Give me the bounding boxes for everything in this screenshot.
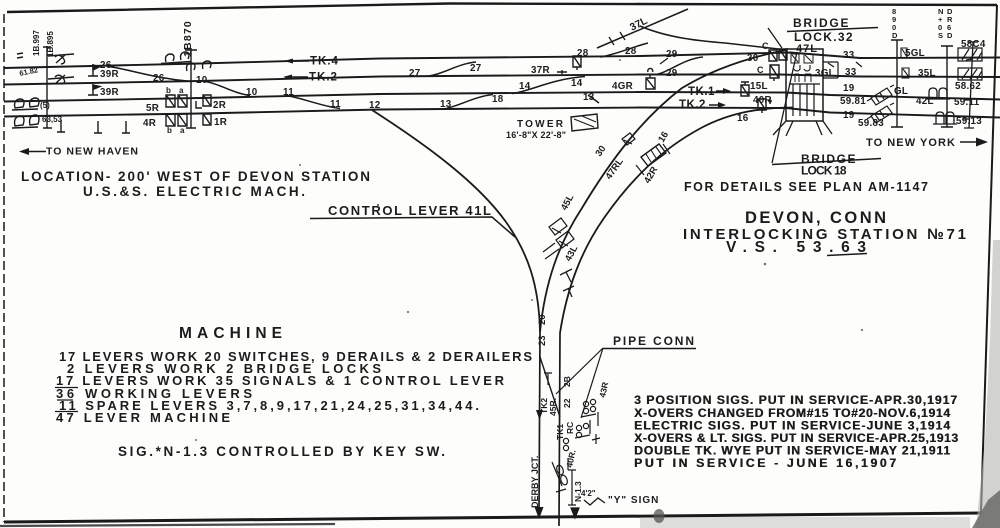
svg-text:39R: 39R (100, 69, 119, 80)
svg-text:a: a (180, 126, 185, 135)
svg-text:39R: 39R (100, 87, 119, 98)
svg-text:1B870: 1B870 (182, 20, 194, 57)
svg-text:4R: 4R (143, 118, 156, 129)
svg-text:45R.: 45R. (548, 398, 558, 416)
svg-text:D: D (892, 31, 898, 40)
svg-text:15L: 15L (750, 81, 768, 92)
svg-text:29: 29 (666, 68, 678, 79)
svg-text:10: 10 (196, 75, 208, 86)
svg-text:1R: 1R (214, 117, 227, 128)
svg-text:47RL: 47RL (603, 156, 625, 182)
svg-text:23: 23 (537, 335, 548, 346)
svg-text:37R: 37R (531, 65, 550, 76)
svg-text:59.11: 59.11 (954, 97, 980, 108)
svg-text:TK.4: TK.4 (310, 56, 339, 68)
svg-text:U.S.&S. ELECTRIC MACH.: U.S.&S. ELECTRIC MACH. (83, 184, 305, 199)
svg-text:28: 28 (577, 48, 589, 59)
svg-text:b: b (167, 126, 172, 135)
svg-text:RC: RC (565, 422, 575, 434)
svg-text:22: 22 (562, 398, 572, 408)
svg-text:TO NEW YORK: TO NEW YORK (866, 137, 955, 149)
svg-text:TO NEW HAVEN: TO NEW HAVEN (46, 146, 138, 158)
svg-text:TK.1: TK.1 (688, 86, 715, 98)
svg-text:35L: 35L (918, 68, 936, 79)
svg-text:BRIDGE: BRIDGE (793, 16, 851, 30)
svg-text:12: 12 (369, 100, 381, 111)
svg-text:5R: 5R (146, 103, 159, 114)
svg-text:TOWER: TOWER (517, 119, 564, 130)
svg-text:11: 11 (330, 99, 341, 110)
svg-text:13: 13 (583, 92, 595, 103)
svg-text:43L: 43L (563, 244, 580, 264)
svg-text:30: 30 (593, 144, 608, 159)
svg-text:CONTROL LEVER 41L: CONTROL LEVER 41L (328, 203, 491, 218)
svg-text:13: 13 (440, 99, 452, 110)
svg-text:27: 27 (409, 68, 421, 79)
svg-text:19: 19 (843, 83, 855, 94)
svg-text:16: 16 (737, 113, 749, 124)
svg-text:29: 29 (666, 49, 678, 60)
svg-text:3GL: 3GL (815, 68, 835, 79)
svg-text:D: D (947, 31, 953, 40)
svg-text:19: 19 (843, 110, 855, 121)
svg-text:b: b (166, 86, 171, 95)
svg-text:42R: 42R (642, 165, 660, 186)
svg-text:11: 11 (283, 87, 294, 98)
svg-text:16'-8"X 22'-8": 16'-8"X 22'-8" (506, 130, 566, 140)
svg-text:59.81: 59.81 (840, 96, 866, 107)
svg-text:10: 10 (246, 87, 258, 98)
svg-text:58.62: 58.62 (955, 81, 981, 92)
svg-text:63,53: 63,53 (42, 115, 63, 124)
svg-text:37L: 37L (628, 15, 650, 34)
svg-text:20: 20 (537, 314, 548, 325)
svg-text:3 POSITION SIGS. PUT IN SERVIC: 3 POSITION SIGS. PUT IN SERVICE-APR.30,1… (634, 393, 957, 407)
svg-text:TK.2: TK.2 (679, 99, 706, 111)
svg-text:FOR DETAILS SEE PLAN AM-1147: FOR DETAILS SEE PLAN AM-1147 (684, 180, 928, 194)
svg-text:(5): (5) (40, 101, 50, 110)
svg-text:4GR: 4GR (612, 81, 633, 92)
svg-text:45L: 45L (559, 193, 576, 213)
svg-text:16: 16 (656, 130, 671, 145)
svg-text:40R.: 40R. (564, 449, 578, 469)
svg-text:DEVON, CONN: DEVON, CONN (745, 209, 886, 227)
svg-text:a: a (179, 86, 184, 95)
svg-text:MACHINE: MACHINE (179, 325, 282, 342)
svg-text:DERBY JCT.: DERBY JCT. (530, 456, 540, 508)
svg-text:C: C (757, 65, 764, 75)
svg-text:5GL: 5GL (905, 48, 925, 59)
svg-text:47L: 47L (796, 43, 818, 55)
svg-text:33: 33 (845, 67, 857, 78)
svg-text:S: S (938, 31, 943, 40)
svg-text:2B: 2B (562, 376, 572, 387)
svg-text:PIPE CONN: PIPE CONN (613, 334, 694, 348)
svg-text:14: 14 (519, 81, 531, 92)
svg-text:PUT IN SERVICE - JUNE 16,1907: PUT IN SERVICE - JUNE 16,1907 (634, 456, 896, 470)
svg-text:LOCATION- 200' WEST OF DEVON S: LOCATION- 200' WEST OF DEVON STATION (21, 169, 370, 184)
svg-text:C: C (762, 41, 769, 51)
svg-text:42L: 42L (916, 96, 934, 107)
svg-text:GL: GL (894, 86, 908, 97)
svg-text:33: 33 (843, 50, 855, 61)
svg-text:43R: 43R (597, 381, 610, 398)
svg-text:18: 18 (492, 94, 504, 105)
svg-text:4'2": 4'2" (581, 489, 596, 498)
svg-text:TK1: TK1 (555, 424, 565, 440)
svg-text:26: 26 (153, 73, 165, 84)
svg-text:LOCK 18: LOCK 18 (801, 164, 849, 178)
svg-text:2R: 2R (213, 100, 226, 111)
svg-text:27: 27 (470, 63, 482, 74)
svg-text:"Y" SIGN: "Y" SIGN (608, 495, 659, 506)
svg-text:LOCK.32: LOCK.32 (794, 30, 855, 44)
svg-text:14: 14 (571, 78, 583, 89)
svg-text:SIG.*N-1.3 CONTROLLED BY KEY S: SIG.*N-1.3 CONTROLLED BY KEY SW. (118, 444, 445, 459)
svg-text:28: 28 (625, 46, 637, 57)
svg-text:1B.997: 1B.997 (32, 30, 41, 56)
svg-text:30: 30 (747, 53, 759, 64)
svg-text:TK.2: TK.2 (309, 72, 338, 84)
